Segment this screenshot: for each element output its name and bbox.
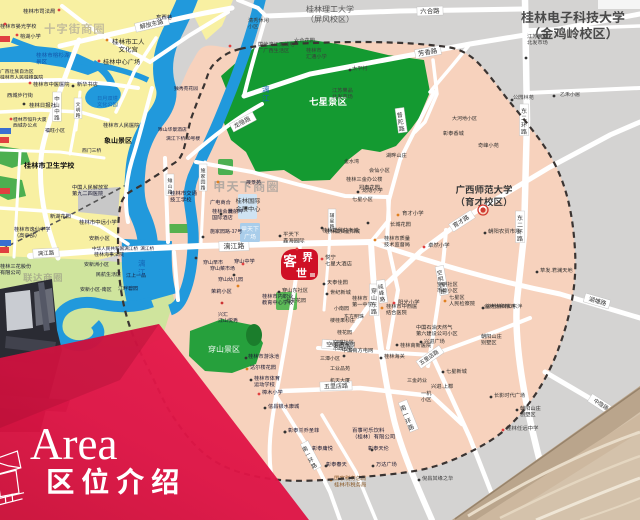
svg-text:Area: Area: [30, 419, 117, 469]
